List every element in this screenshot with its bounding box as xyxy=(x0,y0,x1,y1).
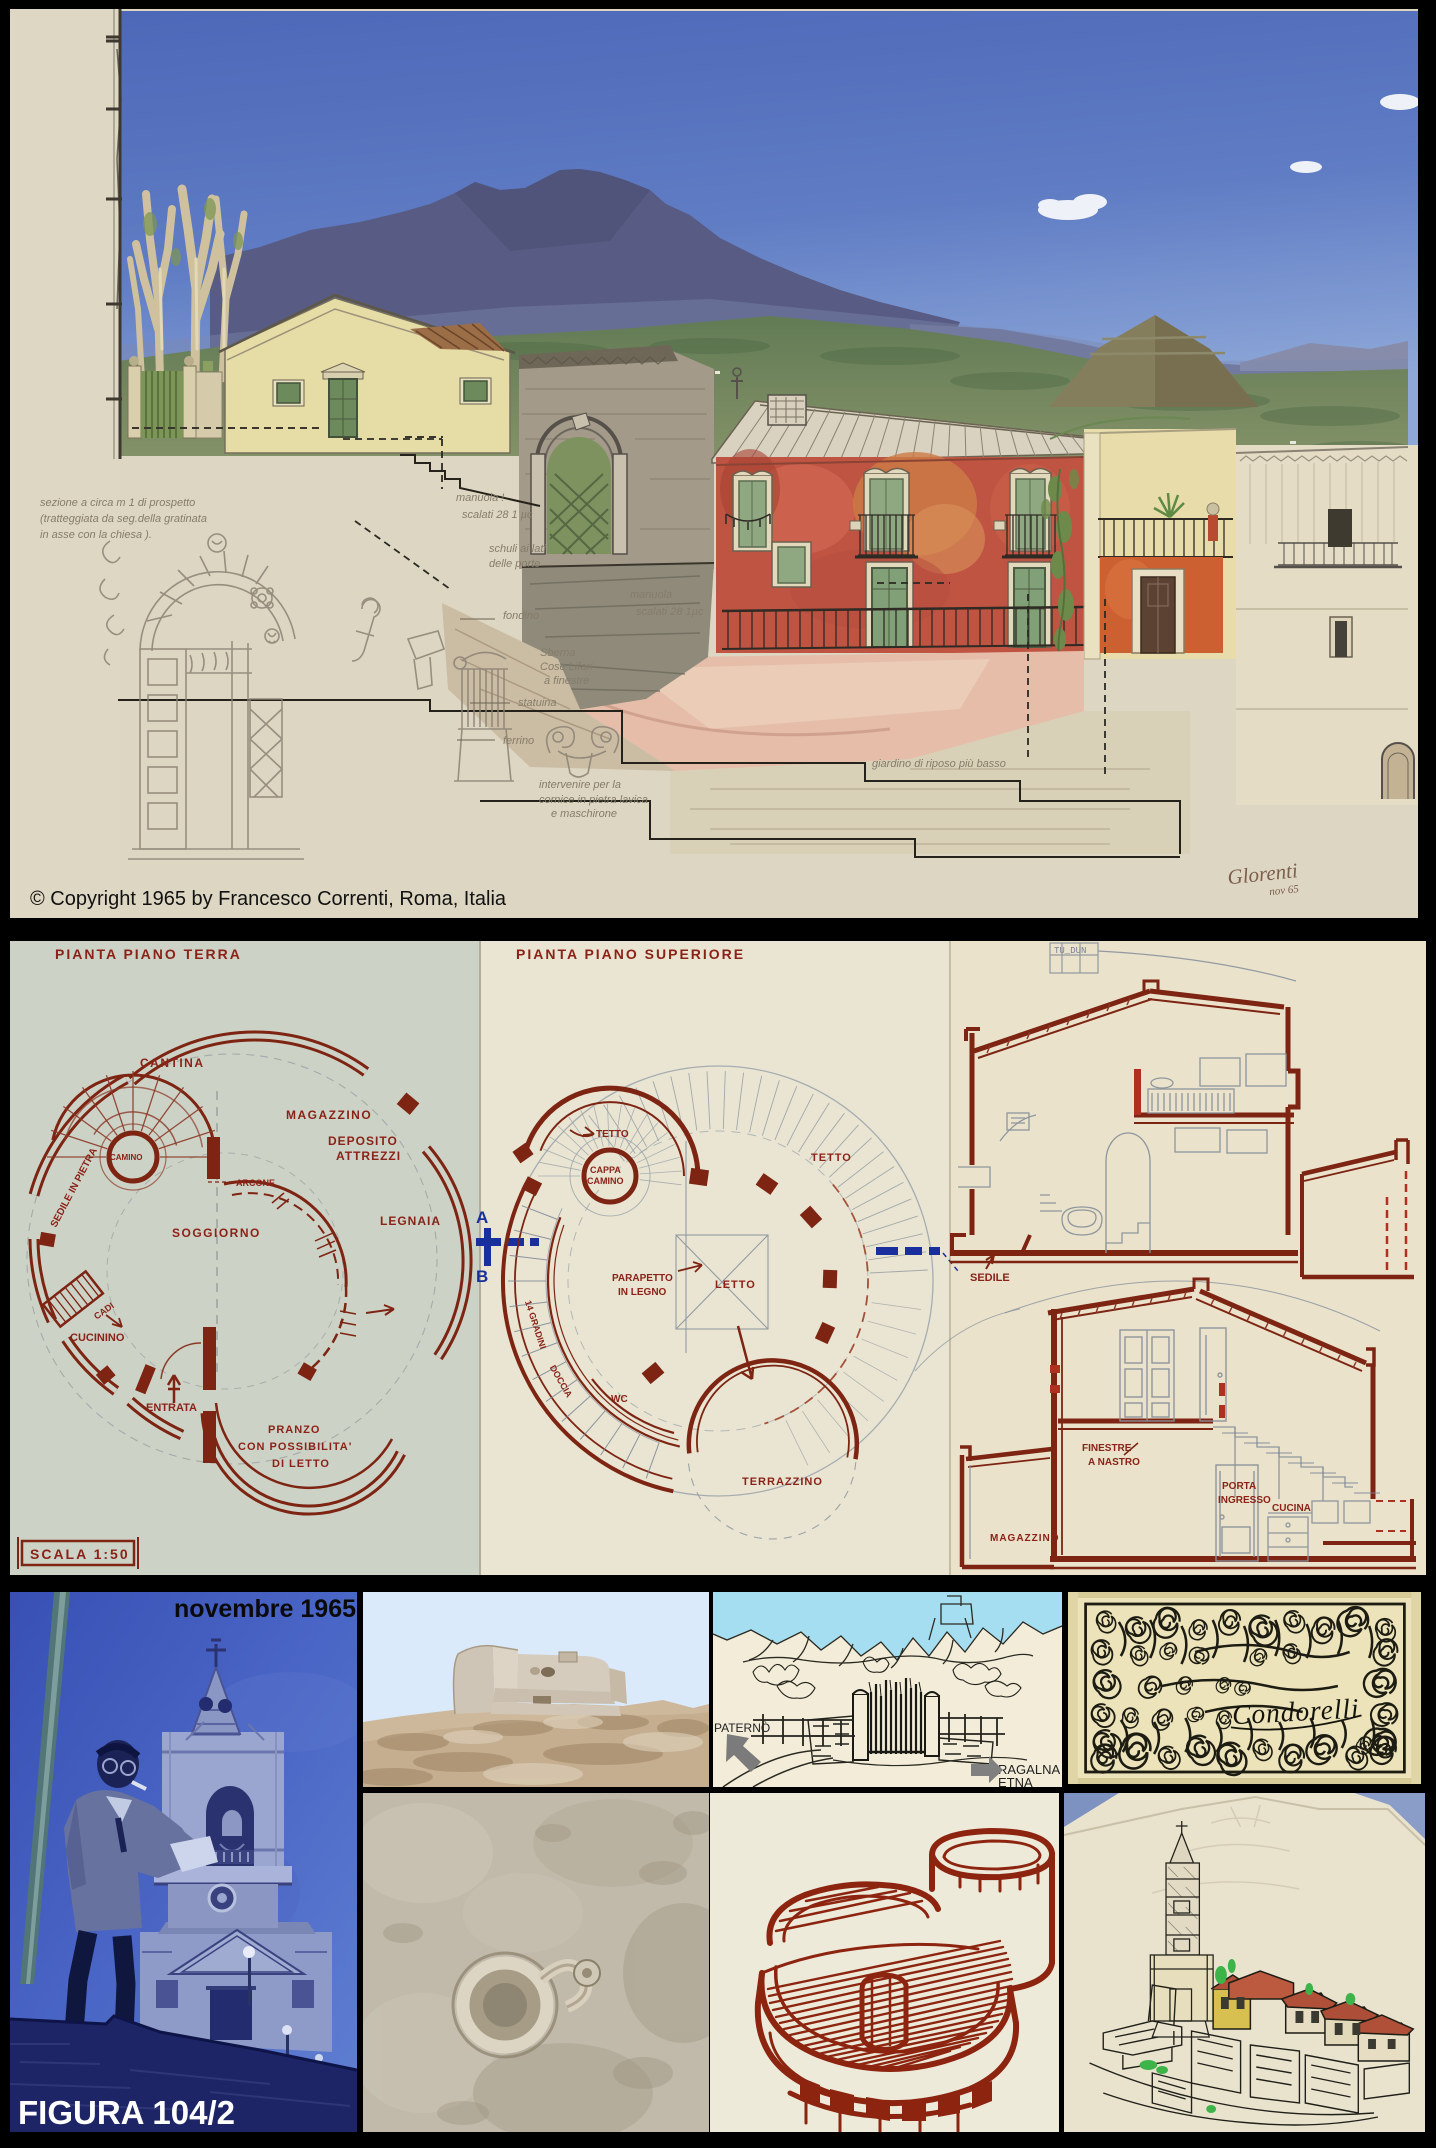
svg-text:B: B xyxy=(476,1267,488,1286)
svg-text:FINESTRE: FINESTRE xyxy=(1082,1443,1132,1454)
svg-text:IN LEGNO: IN LEGNO xyxy=(618,1287,667,1298)
svg-text:WC: WC xyxy=(611,1394,628,1405)
svg-text:manuola: manuola xyxy=(630,589,672,601)
svg-text:ARCONE: ARCONE xyxy=(236,1178,275,1188)
svg-text:ferrino: ferrino xyxy=(503,735,534,747)
svg-text:CUCININO: CUCININO xyxy=(70,1332,125,1344)
svg-text:PIANTA PIANO TERRA: PIANTA PIANO TERRA xyxy=(55,946,242,962)
svg-text:CAPPA: CAPPA xyxy=(590,1165,621,1175)
svg-text:TERRAZZINO: TERRAZZINO xyxy=(742,1476,823,1488)
svg-text:statuina: statuina xyxy=(518,697,557,709)
svg-text:MAGAZZINO: MAGAZZINO xyxy=(286,1108,372,1122)
svg-text:Sberna: Sberna xyxy=(540,647,575,659)
svg-text:manuola !: manuola ! xyxy=(456,492,504,504)
svg-text:SCALA 1:50: SCALA 1:50 xyxy=(30,1546,130,1562)
svg-text:giardino di riposo più basso: giardino di riposo più basso xyxy=(872,758,1006,770)
svg-text:PATERNÒ: PATERNÒ xyxy=(714,1720,770,1735)
svg-text:DI LETTO: DI LETTO xyxy=(272,1458,330,1470)
svg-text:CUCINA: CUCINA xyxy=(1272,1503,1311,1514)
svg-text:a finestre: a finestre xyxy=(544,675,589,687)
svg-text:scalati 28 1 µc: scalati 28 1 µc xyxy=(462,509,533,521)
svg-text:LETTO: LETTO xyxy=(715,1279,756,1291)
svg-text:TU_DUN: TU_DUN xyxy=(1054,946,1086,956)
svg-text:CAMINO: CAMINO xyxy=(110,1153,142,1162)
svg-text:INGRESSO: INGRESSO xyxy=(1218,1495,1271,1506)
svg-text:schuli ai lati: schuli ai lati xyxy=(489,543,546,555)
svg-text:novembre 1965: novembre 1965 xyxy=(174,1595,356,1623)
svg-text:LEGNAIA: LEGNAIA xyxy=(380,1214,441,1228)
svg-text:PRANZO: PRANZO xyxy=(268,1424,320,1436)
svg-text:ETNA: ETNA xyxy=(998,1775,1033,1787)
svg-text:TETTO: TETTO xyxy=(811,1152,852,1164)
svg-text:ENTRATA: ENTRATA xyxy=(146,1402,197,1414)
svg-text:SEDILE: SEDILE xyxy=(970,1272,1010,1284)
svg-text:CON POSSIBILITA': CON POSSIBILITA' xyxy=(238,1441,352,1453)
svg-text:TETTO: TETTO xyxy=(596,1129,629,1140)
svg-text:A NASTRO: A NASTRO xyxy=(1088,1457,1140,1468)
svg-text:fondino: fondino xyxy=(503,610,539,622)
svg-text:Cose Lifari: Cose Lifari xyxy=(540,661,593,673)
svg-text:DEPOSITO: DEPOSITO xyxy=(328,1134,398,1148)
svg-text:PARAPETTO: PARAPETTO xyxy=(612,1273,673,1284)
svg-text:delle porte: delle porte xyxy=(489,558,540,570)
svg-text:scalati 28 1µc: scalati 28 1µc xyxy=(636,606,704,618)
svg-text:cornice in pietra lavica: cornice in pietra lavica xyxy=(539,794,648,806)
svg-text:intervenire per la: intervenire per la xyxy=(539,779,621,791)
svg-text:CANTINA: CANTINA xyxy=(140,1056,205,1070)
svg-text:MAGAZZINO: MAGAZZINO xyxy=(990,1533,1060,1544)
svg-text:(tratteggiata da seg.della gra: (tratteggiata da seg.della gratinata xyxy=(40,513,207,525)
svg-text:PIANTA PIANO SUPERIORE: PIANTA PIANO SUPERIORE xyxy=(516,946,745,962)
svg-text:PORTA: PORTA xyxy=(1222,1481,1256,1492)
svg-text:SOGGIORNO: SOGGIORNO xyxy=(172,1226,261,1240)
svg-text:in asse con la chiesa ).: in asse con la chiesa ). xyxy=(40,529,152,541)
svg-text:e maschirone: e maschirone xyxy=(551,808,617,820)
svg-text:A: A xyxy=(476,1208,488,1227)
svg-text:sezione a circa m 1 di prospet: sezione a circa m 1 di prospetto xyxy=(40,497,195,509)
svg-text:nov 65: nov 65 xyxy=(1269,883,1300,898)
svg-text:FIGURA 104/2: FIGURA 104/2 xyxy=(18,2094,235,2131)
svg-text:© Copyright 1965 by Francesco: © Copyright 1965 by Francesco Correnti, … xyxy=(30,888,507,910)
svg-text:ATTREZZI: ATTREZZI xyxy=(336,1149,401,1163)
svg-text:CAMINO: CAMINO xyxy=(587,1176,624,1186)
